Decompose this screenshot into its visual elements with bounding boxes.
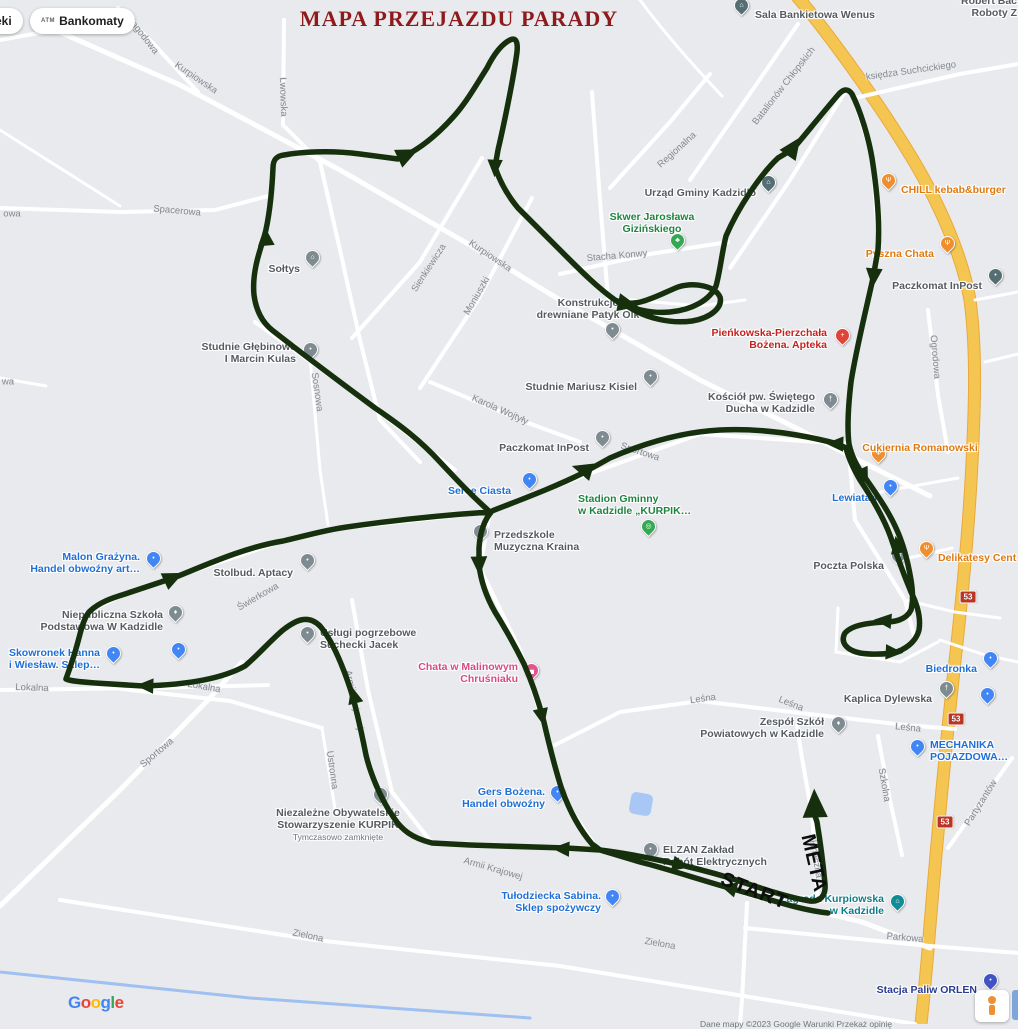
- road: [0, 130, 120, 206]
- poi-label-biedronka[interactable]: Biedronka: [926, 663, 977, 675]
- pin-glyph-icon: +: [836, 329, 849, 342]
- poi-label-stadion-kurpik[interactable]: Stadion Gminnyw Kadzidle „KURPIK…: [578, 493, 691, 517]
- pin-glyph-icon: ♦: [832, 717, 845, 730]
- pin-glyph-icon: †: [824, 393, 837, 406]
- chip-partial[interactable]: eki: [0, 8, 23, 34]
- poi-label-zespol-szkol-powiatowych[interactable]: Zespół SzkółPowiatowych w Kadzidle: [700, 716, 824, 740]
- chip-bankomaty[interactable]: ATM Bankomaty: [30, 8, 135, 34]
- map-canvas[interactable]: JagodowaKurpiowskaLwowskaSpacerowaSienki…: [0, 0, 1018, 1024]
- pin-glyph-icon: •: [551, 786, 564, 799]
- pin-glyph-icon: •: [374, 788, 387, 801]
- poi-label-elzan-zaklad[interactable]: ELZAN ZakładRobót Elektrycznych: [663, 844, 767, 868]
- google-logo[interactable]: Google: [68, 993, 124, 1013]
- pin-glyph-icon: •: [911, 740, 924, 753]
- pin-glyph-icon: •: [984, 652, 997, 665]
- imagery-thumbnail[interactable]: [1012, 990, 1018, 1020]
- pin-glyph-icon: ⌂: [735, 0, 748, 12]
- pin-glyph-icon: •: [301, 554, 314, 567]
- poi-label-serce-ciasta[interactable]: Serce Ciasta: [448, 485, 511, 497]
- poi-label-mechanika-pojazdowa[interactable]: MECHANIKAPOJAZDOWA…: [930, 739, 1008, 763]
- poi-label-soltys[interactable]: Sołtys: [268, 263, 300, 275]
- poi-label-studnie-marcin-kulas[interactable]: Studnie GłębinoweI Marcin Kulas: [201, 341, 296, 365]
- road: [905, 600, 1000, 618]
- pin-glyph-icon: •: [606, 890, 619, 903]
- pin-glyph-icon: •: [606, 323, 619, 336]
- pegman-icon: [988, 996, 996, 1004]
- road: [60, 900, 915, 1024]
- road: [690, 24, 798, 180]
- pin-glyph-icon: •: [301, 627, 314, 640]
- poi-label-kaplica-dylewska[interactable]: Kaplica Dylewska: [844, 693, 932, 705]
- poi-label-kosciol-sw-ducha[interactable]: Kościół pw. ŚwiętegoDucha w Kadzidle: [708, 391, 815, 415]
- poi-label-pienkowska-apteka[interactable]: Pieńkowska-PierzchałaBożena. Apteka: [711, 327, 827, 351]
- pin-glyph-icon: •: [884, 480, 897, 493]
- road: [928, 310, 948, 452]
- pin-glyph-icon: •: [984, 974, 997, 987]
- poi-label-tulodziecka-sabina[interactable]: Tułodziecka Sabina.Sklep spożywczy: [501, 890, 601, 914]
- pin-glyph-icon: •: [304, 343, 317, 356]
- poi-label-urzad-gminy-kadzidlo[interactable]: Urząd Gminy Kadzidło: [645, 187, 756, 199]
- poi-label-chill-kebab-burger[interactable]: CHILL kebab&burger: [901, 184, 1006, 196]
- map-attribution: Dane mapy ©2023 Google Warunki Przekaż o…: [700, 1019, 892, 1029]
- pin-glyph-icon: Ψ: [882, 174, 895, 187]
- poi-label-stolbud-aptacy[interactable]: Stolbud. Aptacy: [213, 567, 293, 579]
- poi-label-studnie-mariusz-kisiel[interactable]: Studnie Mariusz Kisiel: [526, 381, 637, 393]
- pin-glyph-icon: Ψ: [920, 542, 933, 555]
- road: [0, 196, 268, 212]
- route-53-badge: 53: [937, 816, 954, 829]
- road: [836, 608, 938, 662]
- pin-glyph-icon: ⌂: [762, 176, 775, 189]
- page-title: MAPA PRZEJAZDU PARADY: [300, 6, 618, 32]
- pin-glyph-icon: •: [989, 269, 1002, 282]
- pin-glyph-icon: •: [474, 525, 487, 538]
- poi-label-konstrukcje-patyk-olk[interactable]: Konstrukcjedrewniane Patyk Olk: [537, 297, 640, 321]
- pin-glyph-icon: ✉: [892, 549, 905, 562]
- atm-icon: ATM: [41, 18, 55, 24]
- pin-glyph-icon: ♣: [671, 234, 684, 247]
- pin-glyph-icon: ◎: [642, 520, 655, 533]
- road: [975, 292, 1018, 300]
- pin-glyph-icon: ♦: [169, 606, 182, 619]
- street-label: Lokalna: [15, 682, 49, 694]
- pegman-control[interactable]: [975, 990, 1009, 1022]
- poi-label-gers-bozena[interactable]: Gers Bożena.Handel obwoźny: [462, 786, 545, 810]
- road: [985, 354, 1018, 362]
- poi-label-stacja-paliw-orlen[interactable]: Stacja Paliw ORLEN: [877, 984, 977, 996]
- pin-glyph-icon: ⌂: [306, 251, 319, 264]
- pin-glyph-icon: •: [107, 647, 120, 660]
- road: [852, 94, 878, 250]
- poi-label-robert-bac[interactable]: Robert BacRoboty Z: [961, 0, 1017, 19]
- poi-label-paczkomat-inpost-e[interactable]: Paczkomat InPost: [892, 280, 982, 292]
- poi-label-delikatesy-cent[interactable]: Delikatesy Cent: [938, 552, 1016, 564]
- road: [730, 92, 845, 268]
- pin-glyph-icon: •: [172, 643, 185, 656]
- pin-glyph-icon: •: [523, 473, 536, 486]
- road: [740, 903, 747, 1024]
- road: [640, 0, 722, 96]
- street-label: wa: [2, 377, 14, 388]
- route-53-badge: 53: [948, 713, 965, 726]
- pin-glyph-icon: •: [981, 688, 994, 701]
- poi-label-chata-w-malinowym-chrusniaku[interactable]: Chata w MalinowymChruśniaku: [418, 661, 518, 685]
- poi-label-poczta-polska[interactable]: Poczta Polska: [813, 560, 884, 572]
- pin-glyph-icon: •: [596, 431, 609, 444]
- pin-glyph-icon: •: [644, 370, 657, 383]
- poi-label-skowronek-hanna[interactable]: Skowronek Hannai Wiesław. Sklep…: [9, 647, 100, 671]
- pin-glyph-icon: ▄: [525, 664, 538, 677]
- pin-glyph-icon: Ψ: [941, 237, 954, 250]
- pin-glyph-icon: •: [644, 843, 657, 856]
- poi-label-paczkomat-inpost-c[interactable]: Paczkomat InPost: [499, 442, 589, 454]
- poi-label-pyszna-chata[interactable]: Pyszna Chata: [866, 248, 934, 260]
- pin-glyph-icon: ⌂: [891, 895, 904, 908]
- route-53-badge: 53: [960, 591, 977, 604]
- pond: [628, 791, 653, 816]
- poi-label-niepubliczna-szkola[interactable]: Niepubliczna SzkołaPodstawowa W Kadzidle: [40, 609, 163, 633]
- pin-glyph-icon: †: [940, 682, 953, 695]
- street-label: owa: [3, 209, 20, 220]
- poi-label-skwer-gizinskiego[interactable]: Skwer JarosławaGizińskiego: [610, 211, 695, 235]
- street-label: Lwowska: [277, 77, 289, 116]
- poi-label-cukiernia-romanowski[interactable]: Cukiernia Romanowski: [862, 442, 978, 454]
- poi-label-zagroda-kurpiowska[interactable]: Zagroda Kurpiowskaw Kadzidle: [780, 893, 884, 917]
- poi-label-niezalezne-kurpik[interactable]: Niezależne ObywatelskieStowarzyszenie KU…: [276, 807, 400, 843]
- poi-label-uslugi-pogrzebowe-suchecki[interactable]: Usługi pogrzeboweSuchecki Jacek: [320, 627, 416, 651]
- pin-glyph-icon: •: [147, 552, 160, 565]
- poi-label-malon-grazyna[interactable]: Malon Grażyna.Handel obwoźny art…: [30, 551, 140, 575]
- poi-label-przedszkole-muzyczna-kraina[interactable]: PrzedszkoleMuzyczna Kraina: [494, 529, 579, 553]
- poi-label-sala-bankietowa-wenus[interactable]: Sala Bankietowa Wenus: [755, 9, 875, 21]
- poi-label-lewiatan[interactable]: Lewiatan: [832, 492, 877, 504]
